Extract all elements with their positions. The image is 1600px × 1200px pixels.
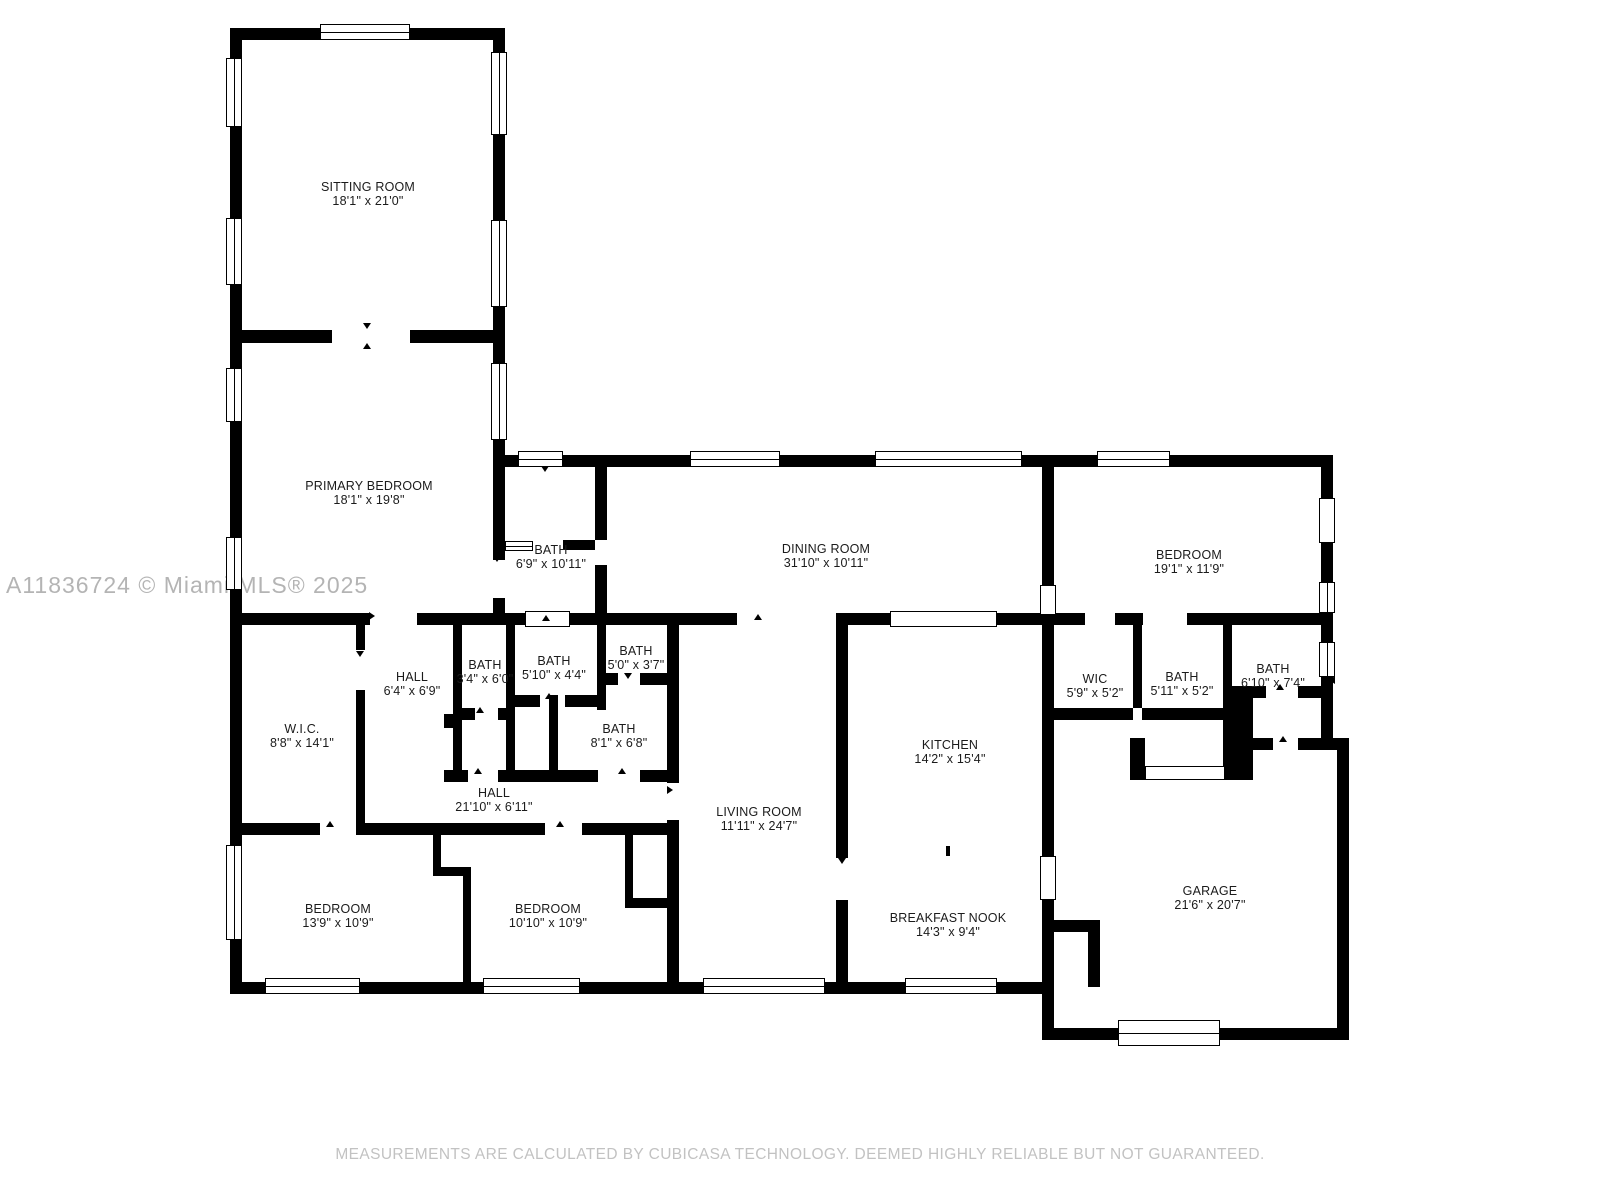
wall-segment — [230, 422, 242, 537]
wall-segment — [444, 770, 468, 782]
wall-segment — [595, 565, 607, 625]
wall-segment — [230, 285, 242, 368]
room-name: BATH — [1150, 670, 1213, 684]
wall-segment — [565, 695, 606, 707]
wall-segment — [463, 876, 471, 982]
wall-segment — [667, 613, 679, 783]
room-name: BATH — [591, 722, 648, 736]
wall-segment — [498, 708, 515, 720]
wall-segment — [230, 823, 320, 835]
room-dimensions: 3'4" x 6'0" — [457, 672, 514, 686]
window-symbol — [518, 451, 563, 467]
opening-symbol — [1319, 498, 1335, 543]
door-marker — [545, 693, 553, 699]
window-symbol — [320, 24, 410, 40]
room-dimensions: 18'1" x 21'0" — [321, 194, 415, 208]
door-marker — [541, 466, 549, 472]
room-name: BREAKFAST NOOK — [890, 911, 1007, 925]
wall-segment — [1187, 613, 1333, 625]
wall-segment — [1321, 455, 1333, 500]
door-marker — [667, 786, 673, 794]
wall-segment — [493, 307, 505, 363]
room-label: LIVING ROOM11'11" x 24'7" — [716, 805, 802, 833]
window-symbol — [226, 58, 242, 127]
room-dimensions: 6'4" x 6'9" — [384, 684, 441, 698]
door-marker — [1174, 712, 1182, 718]
room-label: BATH5'10" x 4'4" — [522, 654, 586, 682]
room-name: HALL — [455, 786, 532, 800]
room-dimensions: 5'9" x 5'2" — [1067, 686, 1124, 700]
room-dimensions: 18'1" x 19'8" — [305, 493, 433, 507]
opening-symbol — [1040, 585, 1056, 615]
wall-segment — [358, 823, 545, 835]
room-name: KITCHEN — [914, 738, 985, 752]
wall-segment — [493, 467, 505, 560]
wall-segment — [498, 770, 598, 782]
wall-segment — [1088, 932, 1100, 987]
room-label: BEDROOM13'9" x 10'9" — [302, 902, 373, 930]
wall-segment — [493, 455, 518, 467]
room-dimensions: 11'11" x 24'7" — [716, 819, 802, 833]
plan-drawing: SITTING ROOM18'1" x 21'0"PRIMARY BEDROOM… — [0, 0, 1600, 1200]
door-marker — [363, 323, 371, 329]
window-symbol — [226, 218, 242, 285]
room-dimensions: 19'1" x 11'9" — [1154, 562, 1224, 576]
wall-segment — [1054, 920, 1100, 932]
window-symbol — [690, 451, 780, 467]
room-name: BATH — [516, 543, 586, 557]
wall-segment — [946, 846, 950, 856]
window-symbol — [226, 368, 242, 422]
room-label: BEDROOM10'10" x 10'9" — [509, 902, 587, 930]
floor-plan: A11836724 © Miami MLS® 2025 SITTING ROOM… — [0, 0, 1600, 1200]
wall-segment — [1130, 738, 1145, 780]
window-symbol — [491, 52, 507, 135]
room-label: BATH8'1" x 6'8" — [591, 722, 648, 750]
opening-symbol — [1145, 766, 1225, 780]
wall-segment — [230, 330, 332, 343]
wall-segment — [1337, 750, 1349, 1040]
room-dimensions: 31'10" x 10'11" — [782, 556, 870, 570]
wall-segment — [1022, 455, 1097, 467]
window-symbol — [1118, 1020, 1220, 1046]
wall-segment — [780, 455, 875, 467]
wall-segment — [1321, 613, 1333, 642]
wall-segment — [625, 835, 633, 900]
wall-segment — [506, 695, 540, 707]
room-dimensions: 5'0" x 3'7" — [608, 658, 665, 672]
door-marker — [363, 343, 371, 349]
room-label: BATH3'4" x 6'0" — [457, 658, 514, 686]
window-symbol — [905, 978, 997, 994]
room-name: GARAGE — [1174, 884, 1245, 898]
wall-segment — [1115, 613, 1143, 625]
room-name: BATH — [1241, 662, 1305, 676]
room-name: HALL — [384, 670, 441, 684]
door-marker — [1044, 576, 1052, 582]
wall-segment — [230, 127, 242, 218]
room-dimensions: 6'9" x 10'11" — [516, 557, 586, 571]
room-label: HALL6'4" x 6'9" — [384, 670, 441, 698]
wall-segment — [493, 28, 505, 52]
window-symbol — [875, 451, 1022, 467]
room-dimensions: 21'6" x 20'7" — [1174, 898, 1245, 912]
wall-segment — [433, 867, 471, 876]
room-dimensions: 14'3" x 9'4" — [890, 925, 1007, 939]
wall-segment — [1321, 543, 1333, 582]
room-label: SITTING ROOM18'1" x 21'0" — [321, 180, 415, 208]
wall-segment — [1253, 738, 1273, 750]
room-label: PRIMARY BEDROOM18'1" x 19'8" — [305, 479, 433, 507]
wall-segment — [1042, 625, 1054, 858]
room-dimensions: 8'8" x 14'1" — [270, 736, 334, 750]
wall-segment — [1142, 708, 1223, 720]
door-marker — [474, 768, 482, 774]
wall-segment — [493, 135, 505, 220]
room-dimensions: 14'2" x 15'4" — [914, 752, 985, 766]
door-marker — [624, 673, 632, 679]
door-marker — [493, 556, 501, 562]
room-name: BATH — [457, 658, 514, 672]
room-label: DINING ROOM31'10" x 10'11" — [782, 542, 870, 570]
wall-segment — [360, 982, 483, 994]
wall-segment — [640, 673, 670, 685]
wall-segment — [410, 330, 505, 343]
room-dimensions: 8'1" x 6'8" — [591, 736, 648, 750]
wall-segment — [1042, 467, 1054, 585]
wall-segment — [230, 982, 265, 994]
door-marker — [1087, 712, 1095, 718]
window-symbol — [491, 363, 507, 440]
wall-segment — [549, 695, 558, 780]
door-marker — [369, 612, 375, 620]
room-label: BATH5'11" x 5'2" — [1150, 670, 1213, 698]
room-label: W.I.C.8'8" x 14'1" — [270, 722, 334, 750]
door-marker — [618, 768, 626, 774]
window-symbol — [491, 220, 507, 307]
wall-segment — [1321, 677, 1333, 745]
room-label: BATH6'10" x 7'4" — [1241, 662, 1305, 690]
room-dimensions: 21'10" x 6'11" — [455, 800, 532, 814]
room-name: BATH — [608, 644, 665, 658]
room-name: BEDROOM — [302, 902, 373, 916]
wall-segment — [595, 467, 607, 540]
room-label: BREAKFAST NOOK14'3" x 9'4" — [890, 911, 1007, 939]
window-symbol — [1319, 642, 1335, 677]
wall-segment — [563, 455, 690, 467]
door-marker — [542, 615, 550, 621]
opening-symbol — [890, 611, 997, 627]
door-marker — [838, 858, 846, 864]
door-marker — [326, 821, 334, 827]
wall-segment — [597, 673, 618, 685]
wall-segment — [825, 982, 905, 994]
wall-segment — [580, 982, 710, 994]
door-marker — [232, 712, 238, 720]
room-name: W.I.C. — [270, 722, 334, 736]
window-symbol — [1319, 582, 1335, 613]
door-marker — [356, 651, 364, 657]
wall-segment — [1042, 900, 1054, 1040]
wall-segment — [453, 708, 475, 720]
room-label: GARAGE21'6" x 20'7" — [1174, 884, 1245, 912]
room-dimensions: 13'9" x 10'9" — [302, 916, 373, 930]
door-marker — [1329, 676, 1335, 684]
room-name: LIVING ROOM — [716, 805, 802, 819]
wall-segment — [417, 613, 525, 625]
room-label: WIC5'9" x 5'2" — [1067, 672, 1124, 700]
window-symbol — [1097, 451, 1170, 467]
wall-segment — [230, 613, 370, 625]
wall-segment — [453, 625, 462, 780]
wall-segment — [356, 625, 365, 650]
wall-segment — [582, 823, 679, 835]
room-name: PRIMARY BEDROOM — [305, 479, 433, 493]
door-marker — [556, 821, 564, 827]
wall-segment — [836, 613, 848, 858]
room-dimensions: 10'10" x 10'9" — [509, 916, 587, 930]
wall-segment — [1133, 625, 1142, 708]
room-name: BEDROOM — [1154, 548, 1224, 562]
opening-symbol — [1040, 856, 1056, 900]
room-dimensions: 6'10" x 7'4" — [1241, 676, 1305, 690]
door-marker — [1279, 736, 1287, 742]
window-symbol — [703, 978, 825, 994]
wall-segment — [1054, 1028, 1120, 1040]
room-dimensions: 5'11" x 5'2" — [1150, 684, 1213, 698]
wall-segment — [1298, 738, 1349, 750]
room-name: SITTING ROOM — [321, 180, 415, 194]
wall-segment — [1218, 1028, 1349, 1040]
room-label: HALL21'10" x 6'11" — [455, 786, 532, 814]
room-name: BEDROOM — [509, 902, 587, 916]
door-marker — [476, 707, 484, 713]
room-name: WIC — [1067, 672, 1124, 686]
room-label: BEDROOM19'1" x 11'9" — [1154, 548, 1224, 576]
room-name: DINING ROOM — [782, 542, 870, 556]
window-symbol — [265, 978, 360, 994]
door-marker — [754, 614, 762, 620]
window-symbol — [483, 978, 580, 994]
room-dimensions: 5'10" x 4'4" — [522, 668, 586, 682]
door-marker — [1042, 848, 1050, 854]
wall-segment — [836, 900, 848, 994]
wall-segment — [1223, 625, 1232, 686]
wall-segment — [356, 690, 365, 835]
room-label: KITCHEN14'2" x 15'4" — [914, 738, 985, 766]
wall-segment — [625, 898, 679, 908]
wall-segment — [1170, 455, 1333, 467]
room-label: BATH5'0" x 3'7" — [608, 644, 665, 672]
window-symbol — [226, 537, 242, 590]
room-name: BATH — [522, 654, 586, 668]
window-symbol — [226, 845, 242, 940]
room-label: BATH6'9" x 10'11" — [516, 543, 586, 571]
wall-segment — [997, 982, 1054, 994]
wall-segment — [1223, 686, 1253, 780]
